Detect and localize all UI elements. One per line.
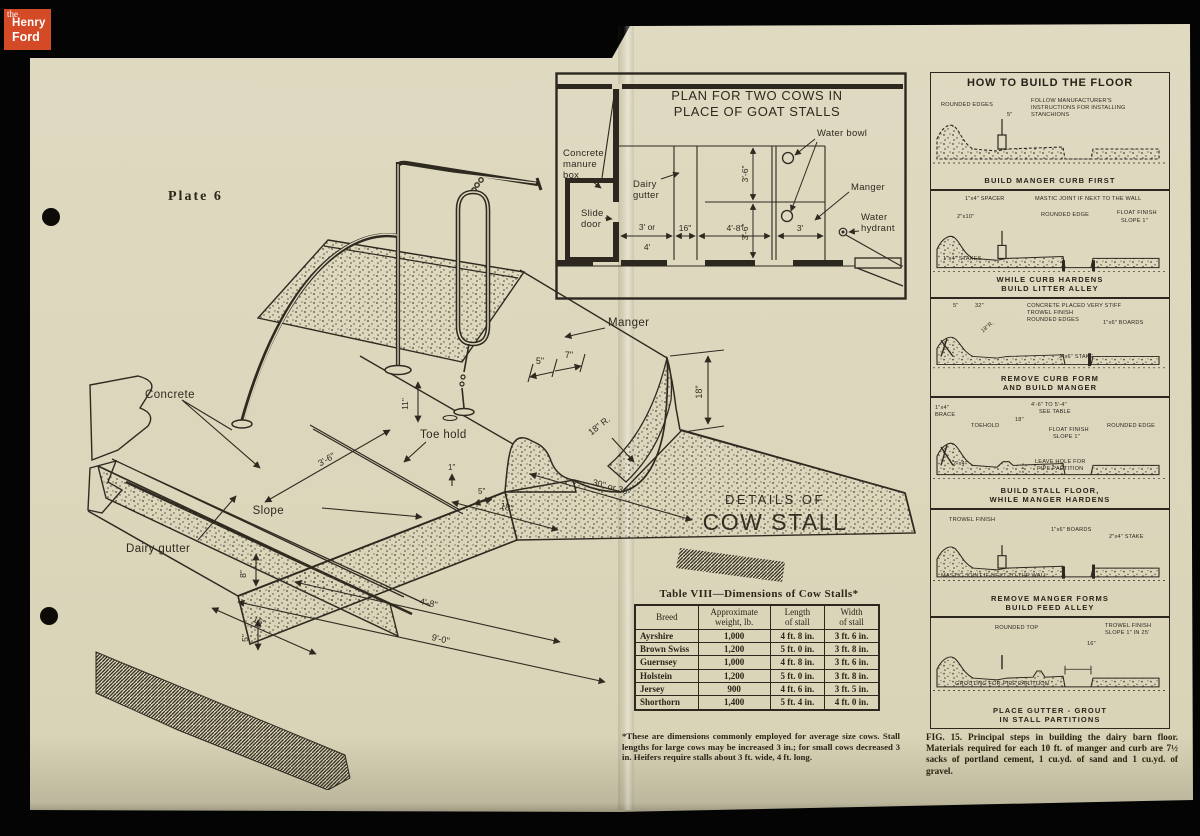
p4-label-1x4: 1"x4" (935, 406, 949, 412)
cell-weight: 1,000 (698, 656, 770, 669)
howto-panel-2: 1"x4" SPACER MASTIC JOINT IF NEXT TO THE… (930, 190, 1170, 298)
table-row: Shorthorn1,4005 ft. 4 in.4 ft. 0 in. (635, 696, 879, 710)
cell-weight: 900 (698, 683, 770, 696)
col-length: Length of stall (770, 605, 825, 629)
p4-caption-2: WHILE MANGER HARDENS (931, 495, 1169, 505)
p2-label-slope: SLOPE 1" (1121, 219, 1148, 225)
dim-radius: 18" R. (586, 414, 612, 437)
howto-panel-1: HOW TO BUILD THE FLOOR ROUNDED EDGES FOL… (930, 72, 1170, 190)
plan-dim-w2: 16" (679, 223, 691, 233)
p4-label-see-table: SEE TABLE (1039, 410, 1071, 416)
dim-curb-5: 5" (536, 356, 544, 366)
p5-label-mastic: MASTIC JOINT IF NEXT TO THE WALL (941, 574, 1047, 580)
label-manger: Manger (608, 317, 649, 329)
p2-label-float: FLOAT FINISH (1117, 211, 1157, 217)
plan-label-manure-3: box (563, 170, 579, 181)
plan-dim-v1: 3'-6" (740, 166, 750, 183)
howto-section-1 (933, 115, 1165, 167)
table-row: Brown Swiss1,2005 ft. 0 in.3 ft. 8 in. (635, 643, 879, 656)
p1-label-instructions: INSTRUCTIONS FOR INSTALLING (1031, 106, 1126, 112)
howto-panel-6: ROUNDED TOP TROWEL FINISH SLOPE 1" IN 25… (930, 617, 1170, 729)
dim-toe-height: 1" (448, 463, 455, 472)
p3-dim-5: 5" (953, 304, 959, 310)
logo-ford: Ford (12, 30, 40, 44)
p1-dim-5: 5" (1007, 113, 1013, 119)
table-row: Guernsey1,0004 ft. 8 in.3 ft. 6 in. (635, 656, 879, 669)
p2-caption-1: WHILE CURB HARDENS (931, 275, 1169, 285)
cow-stall-table-section: Table VIII—Dimensions of Cow Stalls* Bre… (634, 588, 884, 711)
p4-caption-1: BUILD STALL FLOOR, (931, 486, 1169, 496)
drawing-title-line1: DETAILS OF (688, 492, 862, 507)
table-row: Ayrshire1,0004 ft. 8 in.3 ft. 6 in. (635, 629, 879, 642)
plan-label-slide-1: Slide (581, 208, 604, 219)
p3-label-concrete: CONCRETE PLACED VERY STIFF (1027, 304, 1121, 310)
plan-dim-w1b: 4' (644, 242, 651, 252)
cell-breed: Shorthorn (635, 696, 698, 710)
howto-section-3 (933, 329, 1165, 371)
p6-caption-2: IN STALL PARTITIONS (931, 715, 1169, 725)
p2-label-mastic: MASTIC JOINT IF NEXT TO THE WALL (1035, 197, 1141, 203)
plan-label-hydrant-1: Water (861, 212, 887, 223)
p5-caption-1: REMOVE MANGER FORMS (931, 594, 1169, 604)
label-concrete: Concrete (145, 389, 195, 401)
p4-dim-range: 4'-6" TO 5'-4" (1031, 403, 1067, 409)
cell-width: 4 ft. 0 in. (825, 696, 879, 710)
plan-label-dairy-1: Dairy (633, 179, 657, 190)
p5-label-trowel: TROWEL FINISH (949, 518, 995, 524)
cell-weight: 1,000 (698, 629, 770, 642)
howto-section-2 (933, 227, 1165, 275)
col-weight: Approximate weight, lb. (698, 605, 770, 629)
dim-gutter-depth: 8" (238, 570, 248, 578)
scanned-document-page: the Henry Ford Plate 6 (0, 0, 1200, 836)
cell-length: 5 ft. 0 in. (770, 643, 825, 656)
dim-floor-length: 4'-8" (419, 596, 439, 610)
table-header-row: Breed Approximate weight, lb. Length of … (635, 605, 879, 629)
figure-caption: FIG. 15. Principal steps in building the… (926, 732, 1178, 777)
label-dairy-gutter: Dairy gutter (126, 543, 190, 555)
p6-caption-1: PLACE GUTTER - GROUT (931, 706, 1169, 716)
p5-caption-2: BUILD FEED ALLEY (931, 603, 1169, 613)
manger-back-wall (258, 240, 524, 362)
p5-label-stake: 2"x4" STAKE (1109, 535, 1144, 541)
p5-label-boards: 1"x6" BOARDS (1051, 528, 1092, 534)
p3-label-stake: 2"x6" STAKE (1059, 355, 1094, 361)
p3-label-boards: 1"x6" BOARDS (1103, 321, 1144, 327)
dim-toe-width: 5" (478, 487, 485, 496)
howto-panel-3: 5" 32" CONCRETE PLACED VERY STIFF TROWEL… (930, 298, 1170, 397)
p1-caption: BUILD MANGER CURB FIRST (984, 176, 1115, 185)
p1-label-rounded-edges: ROUNDED EDGES (941, 103, 993, 109)
henry-ford-logo: the Henry Ford (4, 9, 51, 50)
punch-hole-top (42, 208, 60, 226)
p3-caption-1: REMOVE CURB FORM (931, 374, 1169, 384)
plan-dim-w4: 3' (797, 223, 804, 233)
dim-overall: 9'-0" (431, 632, 451, 646)
drawing-title-line2: COW STALL (688, 509, 862, 536)
p4-label-pipe-partition: PIPE PARTITION (1037, 467, 1083, 473)
howto-panel-4: 1"x4" BRACE TOEHOLD 4'-6" TO 5'-4" SEE T… (930, 397, 1170, 509)
cell-breed: Jersey (635, 683, 698, 696)
howto-section-4 (933, 434, 1165, 482)
cell-breed: Brown Swiss (635, 643, 698, 656)
p3-label-rounded: ROUNDED EDGES (1027, 318, 1079, 324)
dim-curb-7: 7" (565, 350, 573, 360)
plan-dim-v2: 3'-6" (740, 224, 750, 241)
label-toe-hold: Toe hold (420, 429, 467, 441)
plan-label-hydrant-2: hydrant (861, 223, 895, 234)
p3-label-trowel: TROWEL FINISH (1027, 311, 1073, 317)
plan-title-2: PLACE OF GOAT STALLS (674, 104, 841, 119)
dim-curb-height: 11" (400, 398, 410, 410)
cell-weight: 1,200 (698, 669, 770, 682)
cell-width: 3 ft. 6 in. (825, 656, 879, 669)
p4-label-brace: BRACE (935, 413, 955, 419)
p2-label-rounded-edge: ROUNDED EDGE (1041, 213, 1089, 219)
cell-length: 5 ft. 4 in. (770, 696, 825, 710)
plan-label-water-bowl: Water bowl (817, 128, 867, 139)
p4-label-leave-hole: LEAVE HOLE FOR (1035, 460, 1086, 466)
p4-label-rounded: ROUNDED EDGE (1107, 424, 1155, 430)
drawing-title: DETAILS OF COW STALL (688, 492, 862, 536)
table-title: Table VIII—Dimensions of Cow Stalls* (634, 588, 884, 600)
p3-caption-2: AND BUILD MANGER (931, 383, 1169, 393)
cell-breed: Ayrshire (635, 629, 698, 642)
punch-hole-bottom (40, 607, 58, 625)
plan-label-manure-2: manure (563, 159, 597, 170)
dim-manger-depth: 18" (694, 385, 704, 398)
table-footnote: *These are dimensions commonly employed … (622, 731, 900, 763)
dim-gutter-depth2: 5" (240, 634, 250, 642)
howto-title: HOW TO BUILD THE FLOOR (931, 77, 1169, 89)
p6-label-grouting: GROUTING FOR PIPE PARTITION (955, 682, 1049, 688)
cell-width: 3 ft. 6 in. (825, 629, 879, 642)
cell-width: 3 ft. 8 in. (825, 643, 879, 656)
plan-title-1: PLAN FOR TWO COWS IN (671, 88, 842, 103)
p2-label-stakes: 1"x4" STAKES (943, 257, 982, 263)
plan-label-manure-1: Concrete (563, 148, 604, 159)
plan-label-slide-2: door (581, 219, 601, 230)
plan-label-dairy-2: gutter (633, 190, 659, 201)
plan-dim-w1a: 3' or (639, 222, 655, 232)
ground-hatch (96, 652, 350, 790)
cell-length: 4 ft. 8 in. (770, 629, 825, 642)
dim-slope-length: 3'-6" (316, 451, 337, 469)
p6-label-slope: SLOPE 1" IN 25' (1105, 631, 1149, 637)
p2-label-spacer: 1"x4" SPACER (965, 197, 1005, 203)
p3-dim-32: 32" (975, 304, 984, 310)
p2-label-2x10: 2"x10" (957, 215, 974, 221)
logo-henry: Henry (12, 17, 46, 29)
plan-label-manger: Manger (851, 182, 885, 193)
cell-weight: 1,400 (698, 696, 770, 710)
torn-edge-upper (90, 376, 152, 460)
p4-label-2x4: 2"x4" (953, 462, 967, 468)
p6-label-trowel: TROWEL FINISH (1105, 624, 1151, 630)
cell-length: 4 ft. 8 in. (770, 656, 825, 669)
howto-panel-5: TROWEL FINISH 1"x6" BOARDS 2"x4" STAKE M… (930, 509, 1170, 617)
col-width: Width of stall (825, 605, 879, 629)
p4-label-toehold: TOEHOLD (971, 424, 999, 430)
ground-hatch-right (676, 548, 785, 582)
p6-label-rounded-top: ROUNDED TOP (995, 626, 1038, 632)
p4-dim-18: 18" (1015, 418, 1024, 424)
cell-breed: Guernsey (635, 656, 698, 669)
table-row: Jersey9004 ft. 6 in.3 ft. 5 in. (635, 683, 879, 696)
cell-length: 4 ft. 6 in. (770, 683, 825, 696)
p4-label-float: FLOAT FINISH (1049, 428, 1089, 434)
cell-breed: Holstein (635, 669, 698, 682)
plan-inset: PLAN FOR TWO COWS IN PLACE OF GOAT STALL… (555, 72, 907, 300)
p6-dim-16: 16" (1087, 642, 1096, 648)
col-breed: Breed (635, 605, 698, 629)
p1-label-stanchions: STANCHIONS (1031, 113, 1069, 119)
p4-label-slope: SLOPE 1" (1053, 435, 1080, 441)
p2-caption-2: BUILD LITTER ALLEY (931, 284, 1169, 294)
cow-stall-dimensions-table: Breed Approximate weight, lb. Length of … (634, 604, 880, 711)
cell-width: 3 ft. 8 in. (825, 669, 879, 682)
cell-width: 3 ft. 5 in. (825, 683, 879, 696)
cell-length: 5 ft. 0 in. (770, 669, 825, 682)
p1-label-follow: FOLLOW MANUFACTURER'S (1031, 99, 1112, 105)
cell-weight: 1,200 (698, 643, 770, 656)
table-row: Holstein1,2005 ft. 0 in.3 ft. 8 in. (635, 669, 879, 682)
label-slope: Slope (253, 505, 284, 517)
